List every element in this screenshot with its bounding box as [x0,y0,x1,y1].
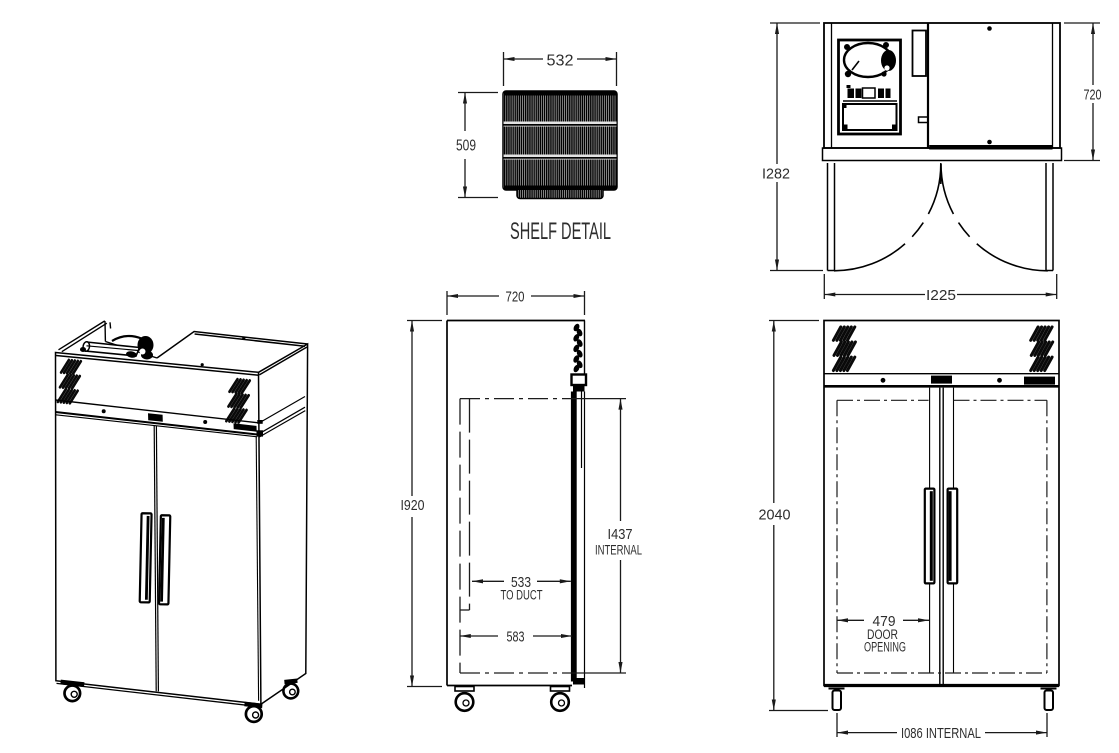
svg-text:I282: I282 [762,166,790,183]
svg-text:509: 509 [456,138,476,155]
svg-text:SHELF DETAIL: SHELF DETAIL [510,218,611,245]
svg-text:I225: I225 [926,287,956,304]
svg-text:2040: 2040 [759,507,791,524]
svg-text:INTERNAL: INTERNAL [595,543,642,558]
svg-text:720: 720 [1084,87,1102,104]
svg-text:I920: I920 [401,497,425,514]
svg-text:583: 583 [507,629,525,646]
svg-text:720: 720 [506,289,525,306]
svg-text:532: 532 [547,53,574,70]
svg-text:I437: I437 [608,526,633,543]
svg-text:OPENING: OPENING [864,640,906,655]
svg-text:TO DUCT: TO DUCT [501,588,543,603]
svg-text:I086 INTERNAL: I086 INTERNAL [901,725,981,742]
